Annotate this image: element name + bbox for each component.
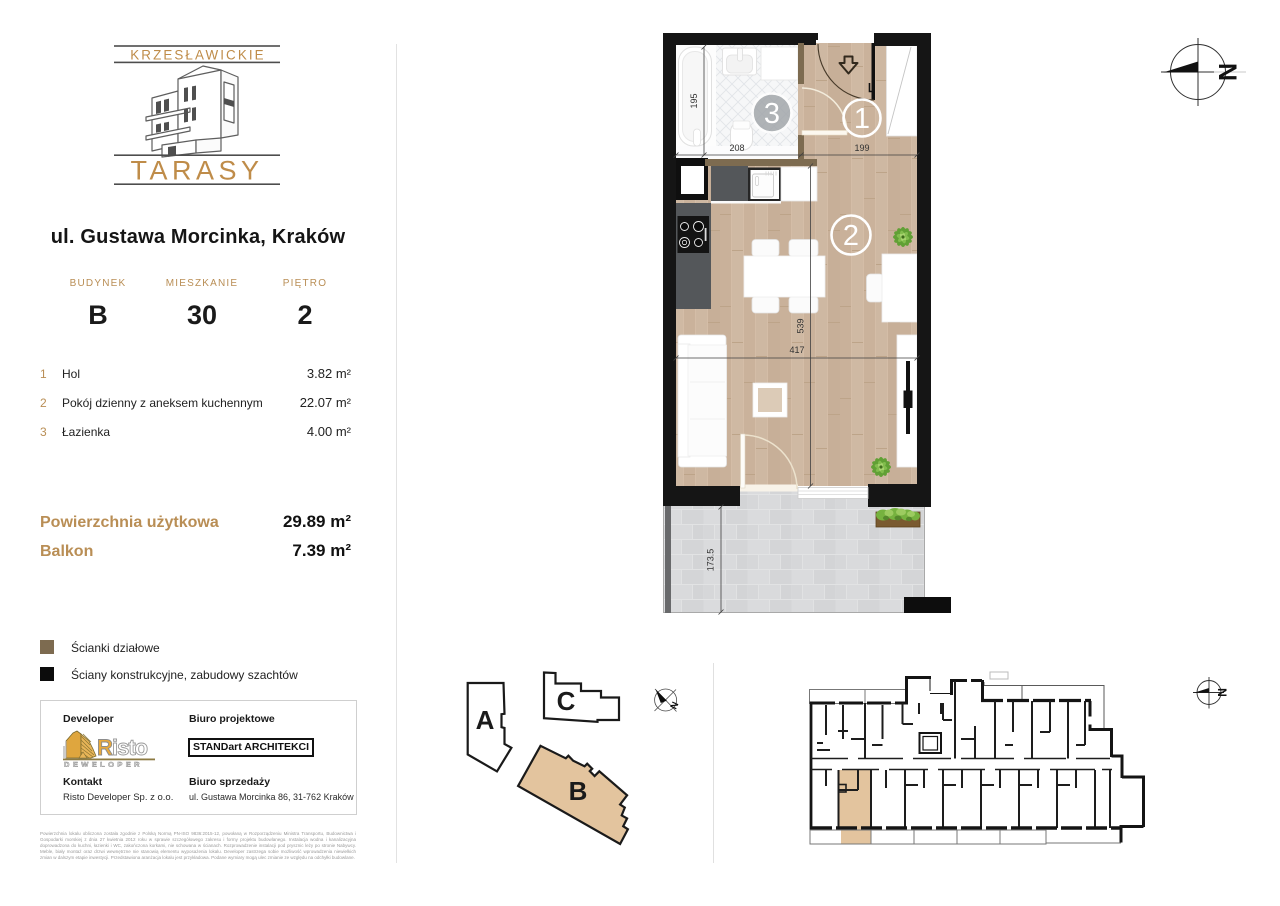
svg-text:N: N [1213,63,1241,81]
svg-text:1: 1 [854,103,870,135]
svg-text:TARASY: TARASY [130,156,263,186]
svg-text:195: 195 [689,93,699,108]
svg-text:N: N [1215,688,1229,697]
svg-text:539: 539 [796,318,806,333]
svg-text:B: B [569,776,588,806]
svg-text:173.5: 173.5 [706,549,716,572]
svg-text:199: 199 [854,143,869,153]
svg-text:isto: isto [112,735,148,760]
svg-text:208: 208 [729,143,744,153]
svg-text:417: 417 [789,345,804,355]
svg-text:2: 2 [843,220,859,252]
svg-text:R: R [97,735,113,760]
svg-text:A: A [476,705,495,735]
svg-text:C: C [557,686,576,716]
svg-text:KRZESŁAWICKIE: KRZESŁAWICKIE [130,48,265,63]
svg-text:DEWELOPER: DEWELOPER [64,760,143,767]
svg-text:3: 3 [764,98,780,130]
